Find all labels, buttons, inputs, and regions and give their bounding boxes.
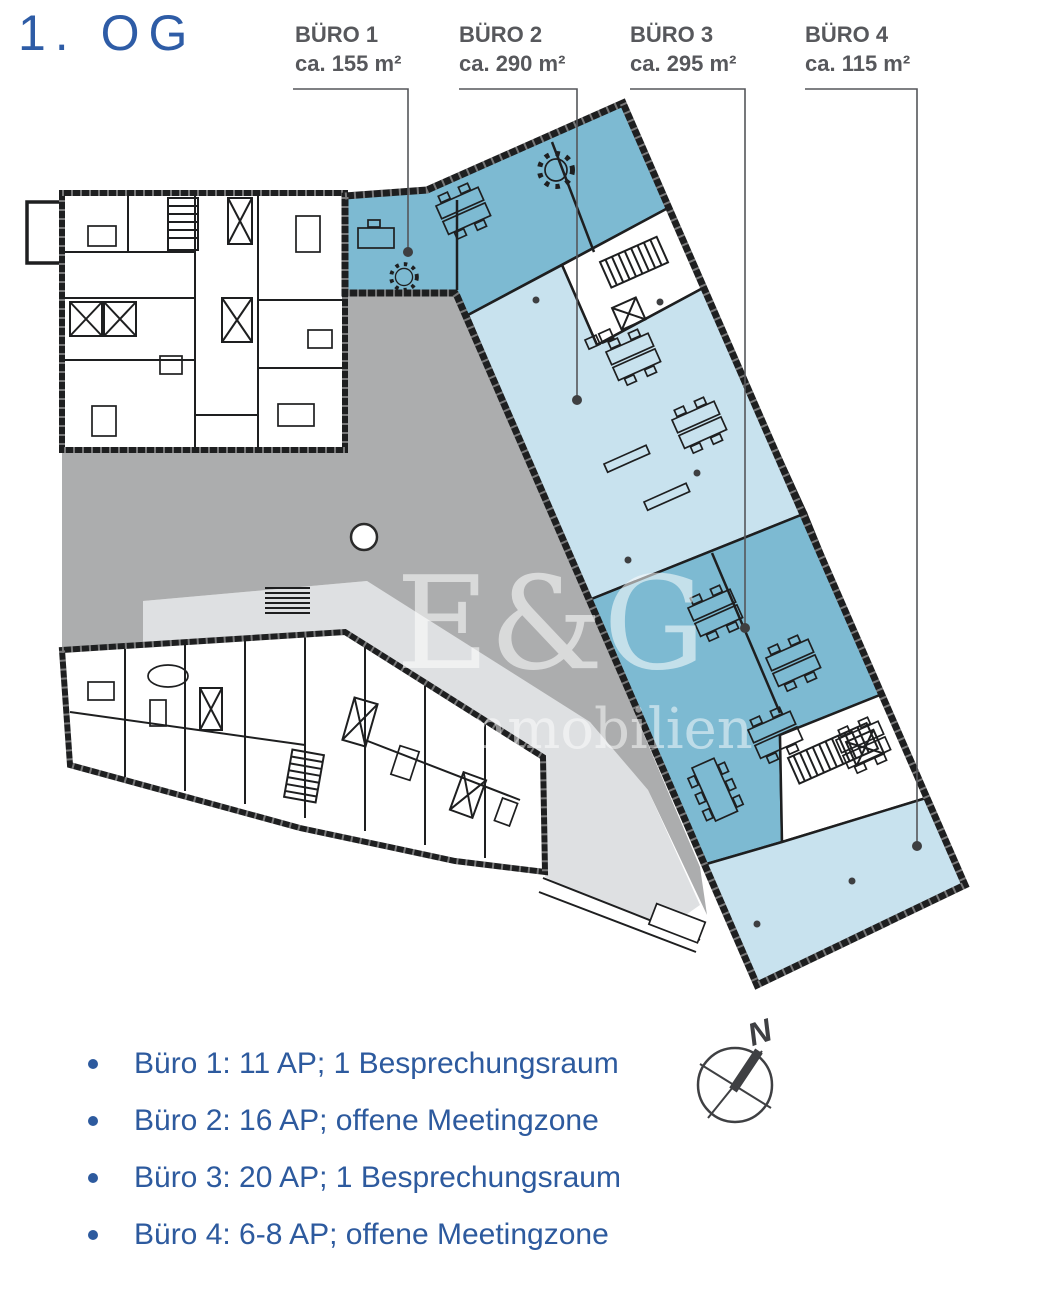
bullet-icon <box>88 1173 98 1183</box>
watermark-word: Immobilien <box>432 697 753 762</box>
watermark: E&G Immobilien <box>396 550 753 762</box>
bullet-icon <box>88 1059 98 1069</box>
legend: Büro 1: 11 AP; 1 Besprechungsraum Büro 2… <box>88 1048 621 1276</box>
area-name: BÜRO 1 <box>295 20 401 49</box>
area-label-buero-1: BÜRO 1 ca. 155 m² <box>295 20 401 79</box>
bullet-icon <box>88 1116 98 1126</box>
legend-item-buero-1: Büro 1: 11 AP; 1 Besprechungsraum <box>88 1048 621 1080</box>
legend-item-buero-2: Büro 2: 16 AP; offene Meetingzone <box>88 1105 621 1137</box>
area-label-buero-3: BÜRO 3 ca. 295 m² <box>630 20 736 79</box>
legend-text: Büro 2: 16 AP; offene Meetingzone <box>134 1105 599 1137</box>
area-label-buero-4: BÜRO 4 ca. 115 m² <box>805 20 910 79</box>
area-size: ca. 295 m² <box>630 49 736 78</box>
building-northwest <box>27 193 345 450</box>
floor-plan-page: E&G Immobilien N 1. OG BÜRO 1 ca. 155 m²… <box>0 0 1048 1310</box>
legend-item-buero-4: Büro 4: 6-8 AP; offene Meetingzone <box>88 1219 621 1251</box>
area-name: BÜRO 3 <box>630 20 736 49</box>
legend-item-buero-3: Büro 3: 20 AP; 1 Besprechungsraum <box>88 1162 621 1194</box>
area-size: ca. 290 m² <box>459 49 565 78</box>
area-label-buero-2: BÜRO 2 ca. 290 m² <box>459 20 565 79</box>
area-size: ca. 115 m² <box>805 49 910 78</box>
legend-text: Büro 3: 20 AP; 1 Besprechungsraum <box>134 1162 621 1194</box>
area-name: BÜRO 4 <box>805 20 910 49</box>
area-name: BÜRO 2 <box>459 20 565 49</box>
bullet-icon <box>88 1230 98 1240</box>
compass-icon: N <box>698 1011 777 1122</box>
legend-text: Büro 1: 11 AP; 1 Besprechungsraum <box>134 1048 619 1080</box>
watermark-logo: E&G <box>396 550 706 699</box>
courtyard-feature-circle <box>351 524 377 550</box>
area-size: ca. 155 m² <box>295 49 401 78</box>
north-label: N <box>743 1011 777 1053</box>
legend-text: Büro 4: 6-8 AP; offene Meetingzone <box>134 1219 609 1251</box>
page-title: 1. OG <box>18 4 196 62</box>
